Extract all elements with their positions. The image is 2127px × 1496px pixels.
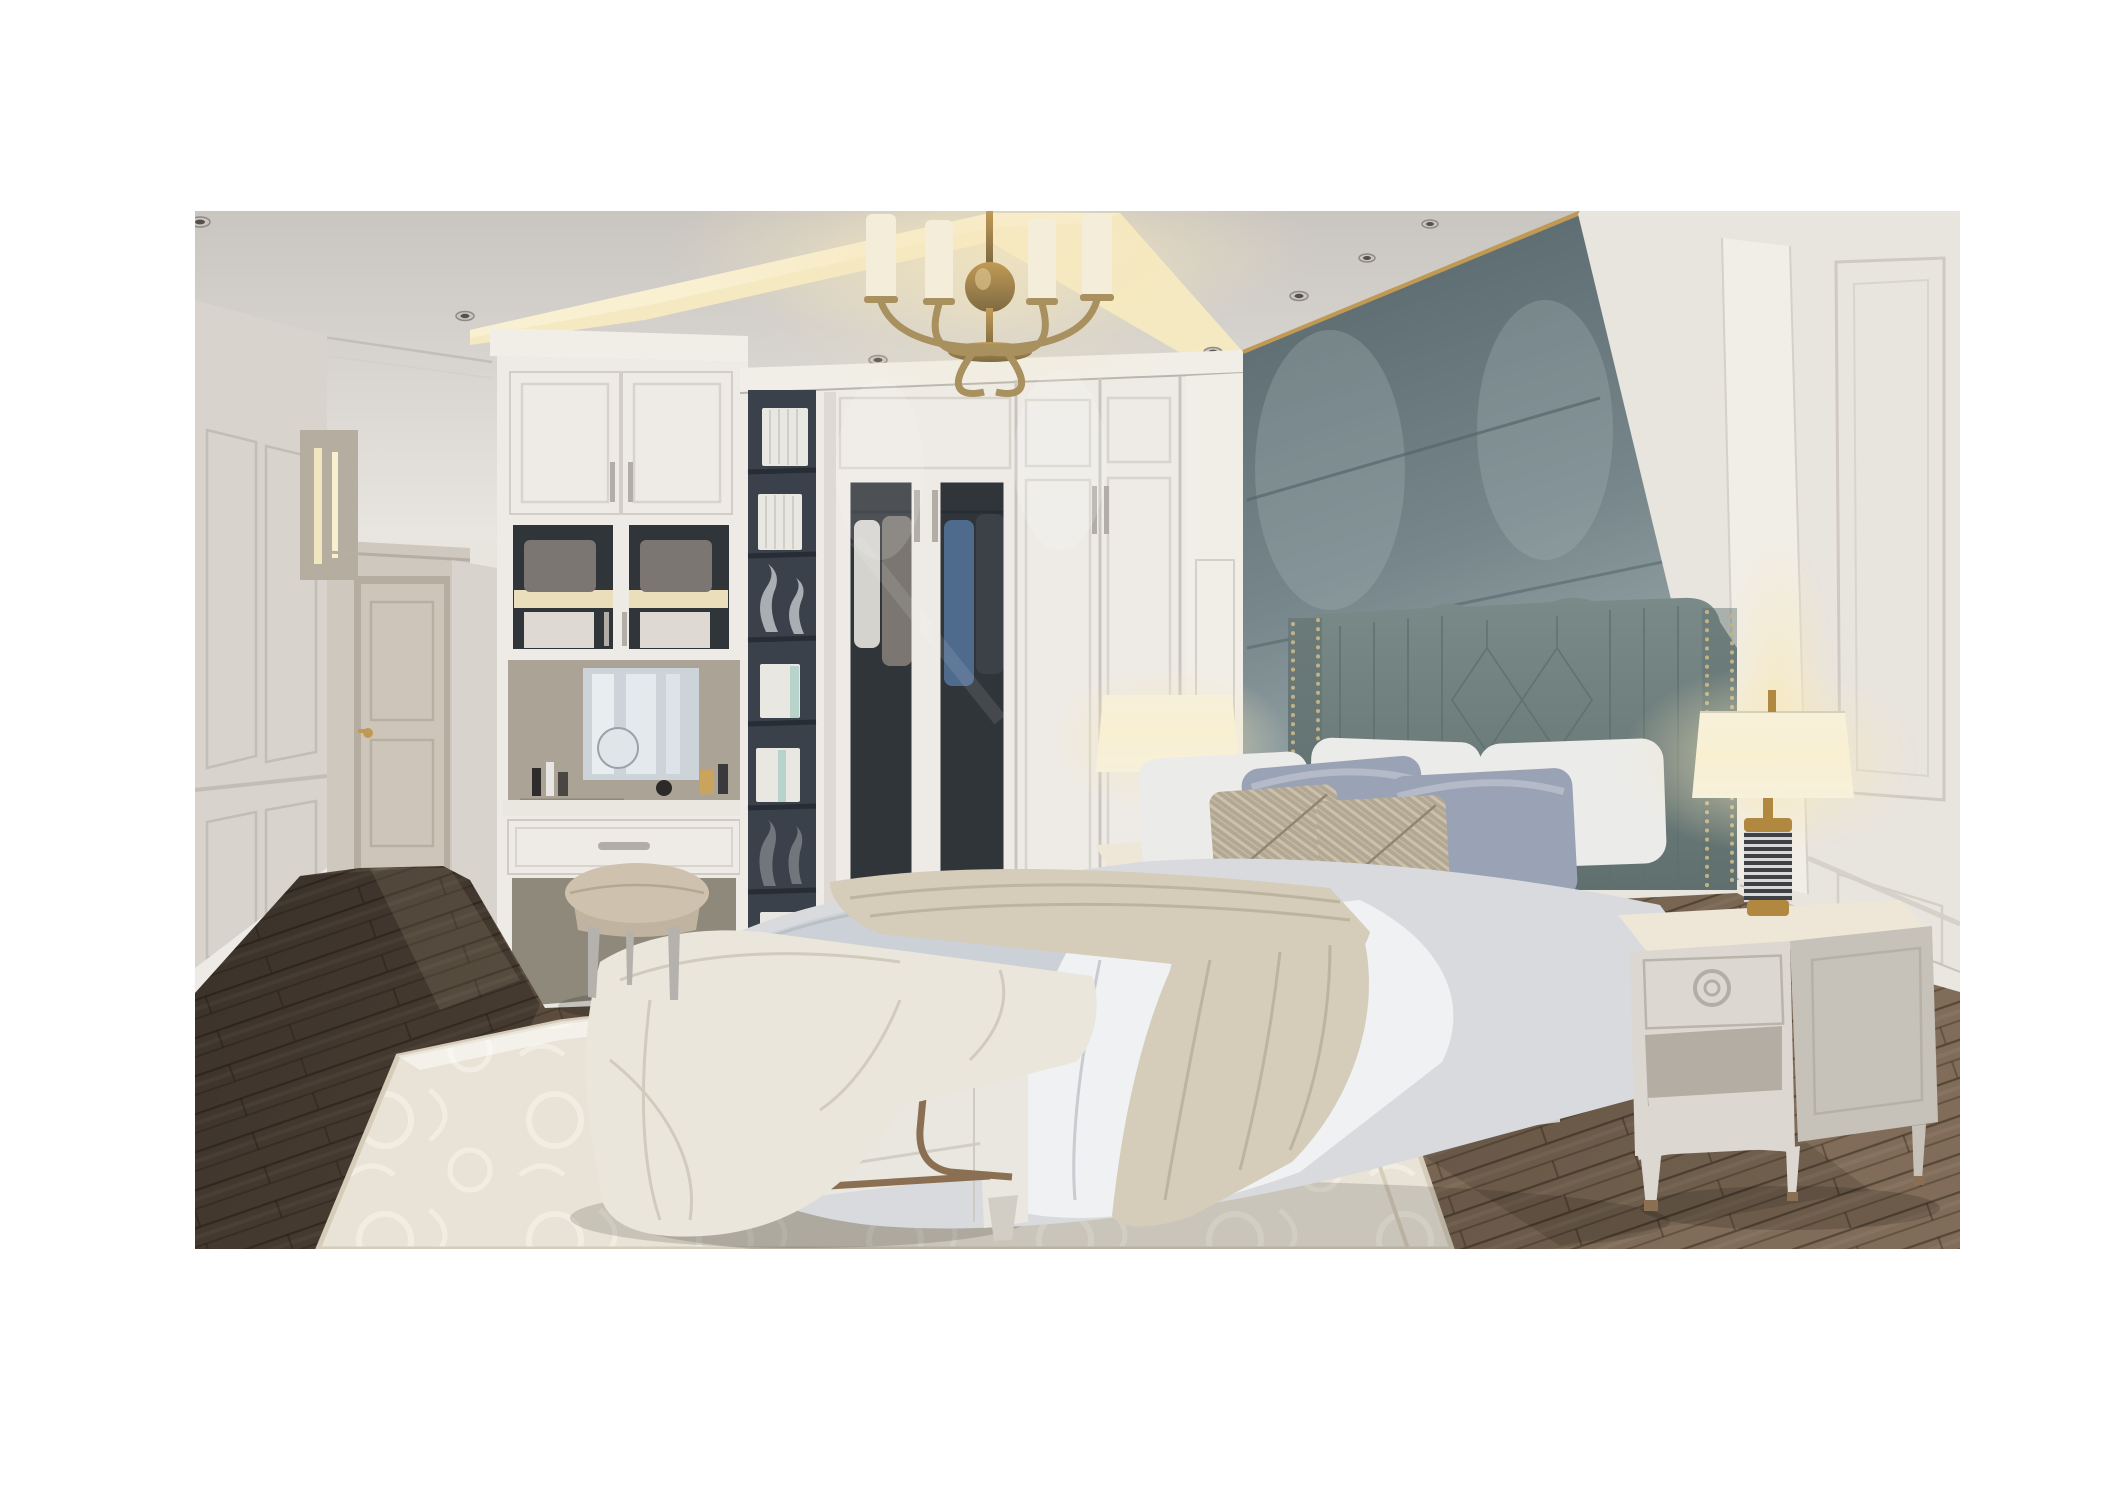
bedroom-photo xyxy=(0,0,2127,1496)
makeup-mirror xyxy=(598,728,638,768)
page xyxy=(0,0,2127,1496)
bookshelf-niche xyxy=(748,390,816,990)
interior-door xyxy=(354,576,450,872)
vanity-counter xyxy=(503,800,745,816)
upper-cabinet xyxy=(510,372,732,514)
chandelier xyxy=(750,190,1230,410)
lit-niche xyxy=(300,430,358,580)
lamp-shade xyxy=(1692,712,1854,798)
wall-wash-light xyxy=(1255,330,1405,610)
glass-display-cabinet xyxy=(508,520,734,654)
lamp-body xyxy=(1744,832,1792,902)
drawer-handle xyxy=(598,842,650,850)
folded-clothes xyxy=(524,540,596,592)
cabinet-handle xyxy=(610,462,615,502)
chandelier-sphere xyxy=(965,262,1015,312)
